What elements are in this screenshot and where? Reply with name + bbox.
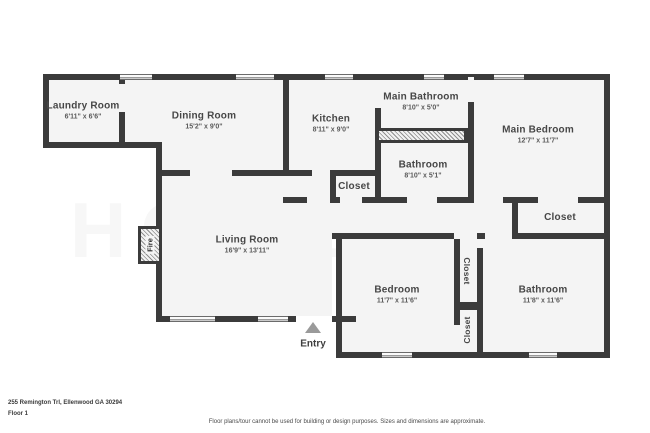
room-dims: 8'10" x 5'0" (383, 104, 458, 113)
wall-segment (512, 203, 518, 233)
window (494, 74, 524, 80)
wall-segment (604, 74, 610, 358)
wall-segment (336, 233, 342, 358)
wall-segment (232, 170, 312, 176)
room-name: Bathroom (519, 285, 568, 297)
wall-segment (477, 310, 483, 352)
room-label-living-room: Living Room 16'9" x 13'11" (216, 235, 279, 256)
wall-segment (336, 352, 610, 358)
window (258, 316, 288, 322)
address-text: 255 Remington Trl, Ellenwood GA 30294 (8, 400, 122, 406)
window (236, 74, 274, 80)
entry-label: Entry (300, 339, 326, 350)
room-label-bathroom-bottom: Bathroom 11'8" x 11'6" (519, 285, 568, 306)
wall-segment (512, 233, 604, 239)
window (170, 316, 215, 322)
room-name: Laundry Room (47, 101, 120, 113)
room-name: Closet (544, 212, 576, 224)
wall-segment (477, 248, 483, 302)
room-label-main-bathroom: Main Bathroom 8'10" x 5'0" (383, 92, 458, 113)
room-label-closet-upper: Closet (461, 257, 473, 284)
entry-arrow-icon (305, 322, 321, 333)
wall-segment (437, 197, 474, 203)
room-label-dining-room: Dining Room 15'2" x 9'0" (172, 111, 236, 132)
wall-segment (332, 233, 454, 239)
room-label-closet-hall: Closet (338, 181, 370, 193)
room-name: Closet (461, 316, 473, 343)
room-dims: 8'11" x 9'0" (312, 126, 350, 135)
wall-segment (283, 74, 289, 176)
room-name: Main Bathroom (383, 92, 458, 104)
room-name: Dining Room (172, 111, 236, 123)
room-label-bathroom-middle: Bathroom 8'10" x 5'1" (399, 160, 448, 181)
room-dims: 12'7" x 11'7" (502, 137, 574, 146)
fireplace-label: Fire (146, 236, 155, 254)
room-dims: 11'7" x 11'6" (374, 297, 419, 306)
room-name: Kitchen (312, 114, 350, 126)
room-dims: 8'10" x 5'1" (399, 172, 448, 181)
room-label-kitchen: Kitchen 8'11" x 9'0" (312, 114, 350, 135)
wall-segment (477, 233, 485, 239)
room-dims: 11'8" x 11'6" (519, 297, 568, 306)
window (424, 74, 444, 80)
room-dims: 6'11" x 6'6" (47, 113, 120, 122)
wall-segment (330, 170, 336, 203)
room-label-closet-main-bedroom: Closet (544, 212, 576, 224)
room-label-laundry-room: Laundry Room 6'11" x 6'6" (47, 101, 120, 122)
room-name: Living Room (216, 235, 279, 247)
room-label-closet-lower: Closet (461, 316, 473, 343)
room-dims: 15'2" x 9'0" (172, 123, 236, 132)
bathtub (375, 128, 468, 143)
wall-segment (454, 302, 483, 310)
wall-segment (503, 197, 538, 203)
room-name: Bathroom (399, 160, 448, 172)
window (325, 74, 353, 80)
room-label-bedroom: Bedroom 11'7" x 11'6" (374, 285, 419, 306)
floor-plan-page: HOMES Fire Laundry Room 6'11" x 6'6" Din… (0, 0, 650, 433)
room-name: Bedroom (374, 285, 419, 297)
room-label-main-bedroom: Main Bedroom 12'7" x 11'7" (502, 125, 574, 146)
wall-segment (330, 170, 378, 176)
window (529, 352, 557, 358)
wall-segment (43, 142, 162, 148)
window (382, 352, 412, 358)
door-opening (119, 84, 125, 112)
room-name: Closet (461, 257, 473, 284)
wall-segment (578, 197, 604, 203)
door-opening (375, 80, 381, 108)
room-dims: 16'9" x 13'11" (216, 247, 279, 256)
door-opening (468, 77, 474, 102)
room-name: Closet (338, 181, 370, 193)
disclaimer-text: Floor plans/tour cannot be used for buil… (209, 419, 486, 425)
floor-number: Floor 1 (8, 411, 28, 417)
wall-segment (454, 239, 460, 302)
wall-segment (283, 197, 307, 203)
room-name: Main Bedroom (502, 125, 574, 137)
window (120, 74, 152, 80)
wall-segment (454, 310, 460, 325)
